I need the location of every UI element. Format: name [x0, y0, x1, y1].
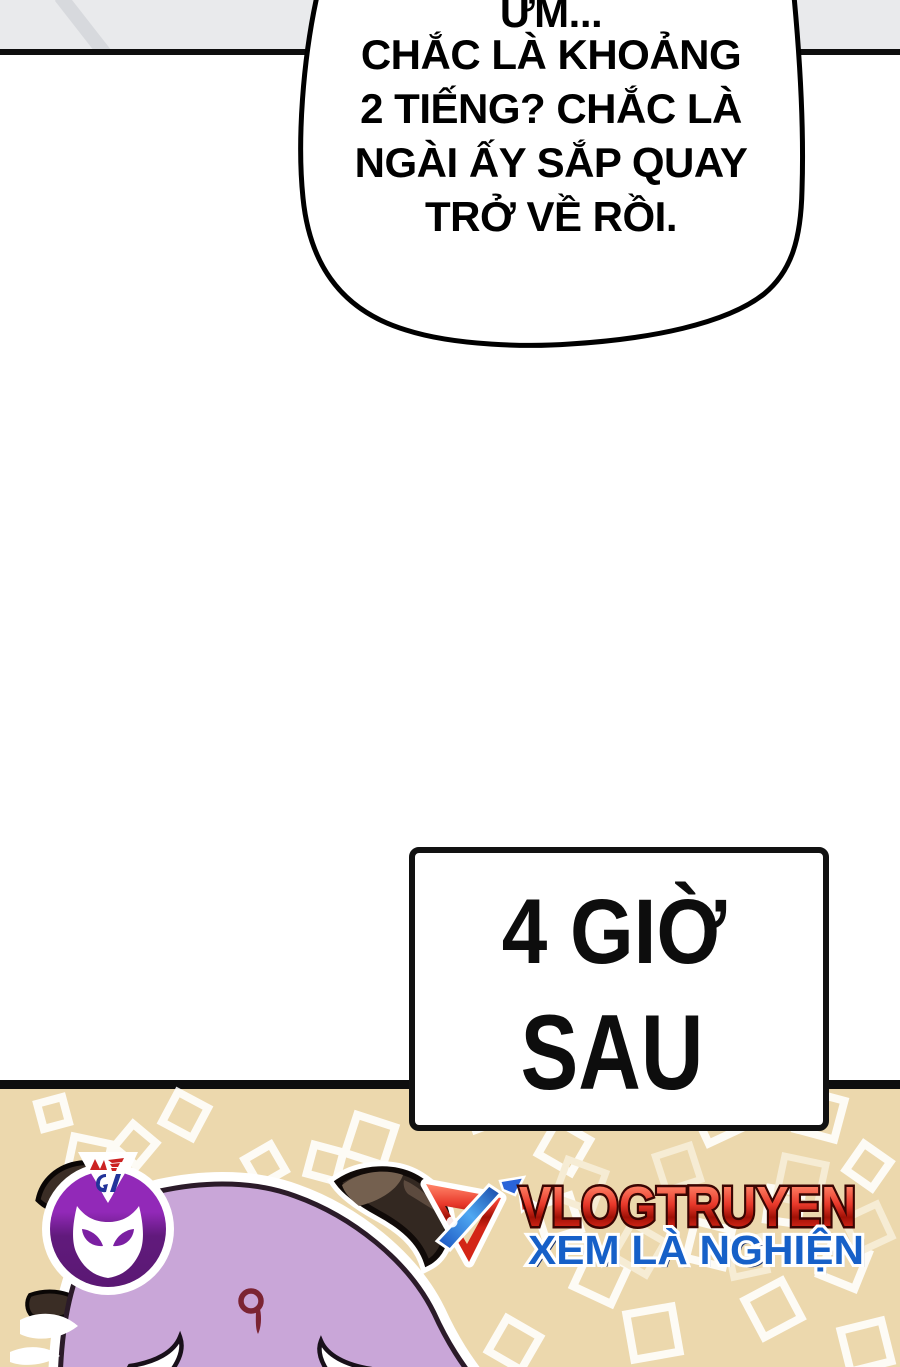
svg-text:XEM LÀ NGHIỆN: XEM LÀ NGHIỆN [528, 1227, 864, 1273]
